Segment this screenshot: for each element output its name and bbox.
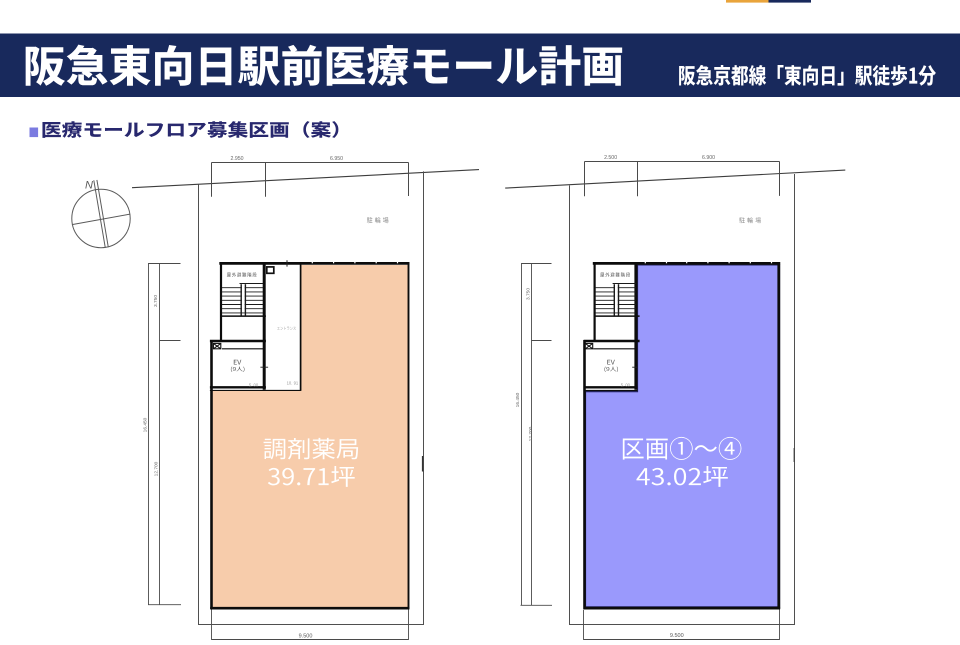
svg-text:16.450: 16.450: [142, 417, 148, 432]
svg-text:9.500: 9.500: [299, 634, 313, 640]
svg-text:3.750: 3.750: [525, 288, 531, 300]
svg-text:5. 00: 5. 00: [249, 382, 259, 387]
svg-text:6.900: 6.900: [702, 155, 715, 161]
svg-text:5. 00: 5. 00: [621, 382, 631, 387]
svg-text:2.500: 2.500: [604, 155, 617, 161]
svg-text:6.950: 6.950: [330, 156, 343, 162]
svg-text:2.950: 2.950: [231, 156, 244, 162]
svg-text:N: N: [85, 180, 93, 192]
svg-text:9.500: 9.500: [670, 633, 684, 639]
svg-text:12.700: 12.700: [154, 461, 160, 476]
svg-text:10. 91: 10. 91: [287, 381, 299, 386]
svg-text:12.700: 12.700: [528, 426, 534, 441]
svg-text:16.450: 16.450: [515, 392, 521, 407]
svg-text:3.750: 3.750: [153, 295, 159, 307]
